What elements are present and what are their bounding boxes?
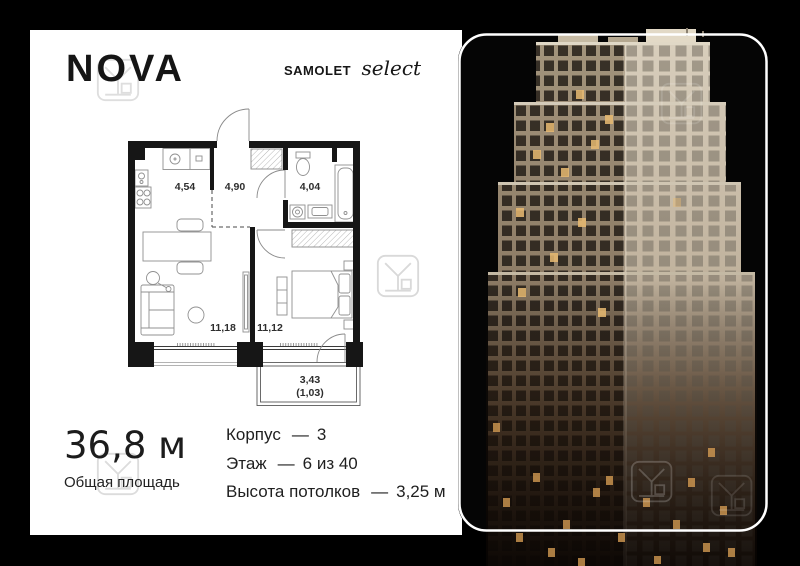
spec-label: Высота потолков bbox=[226, 482, 360, 502]
total-area-block: 36,8 м Общая площадь bbox=[64, 424, 186, 491]
spec-value: 3,25 м bbox=[396, 482, 446, 502]
total-area-label: Общая площадь bbox=[64, 474, 186, 491]
room-area-bedroom: 11,12 bbox=[257, 322, 283, 334]
total-area-value: 36,8 м bbox=[64, 424, 186, 467]
balcony-area: 3,43 bbox=[300, 374, 321, 386]
spec-value: 6 из 40 bbox=[303, 454, 358, 474]
walls-layer bbox=[128, 141, 363, 367]
spec-dash: — bbox=[292, 425, 309, 445]
project-logo: NOVA bbox=[66, 48, 185, 91]
balcony-reduced-area: (1,03) bbox=[296, 387, 323, 399]
building-render bbox=[458, 28, 768, 566]
spec-dash: — bbox=[278, 454, 295, 474]
room-area-bathroom: 4,04 bbox=[300, 181, 321, 193]
spec-label: Этаж bbox=[226, 454, 267, 474]
room-area-kitchen: 4,54 bbox=[175, 181, 196, 193]
spec-row-floor: Этаж — 6 из 40 bbox=[226, 450, 446, 479]
developer-name: samolet bbox=[284, 59, 351, 79]
apartment-specs: Корпус — 3 Этаж — 6 из 40 Высота потолко… bbox=[226, 421, 446, 507]
open-passages bbox=[212, 190, 250, 227]
floor-plan: 4,54 4,90 4,04 11,18 11,12 3,43 (1,03) bbox=[120, 95, 370, 417]
room-area-hallway: 4,90 bbox=[225, 181, 246, 193]
spec-label: Корпус bbox=[226, 425, 281, 445]
spec-dash: — bbox=[371, 482, 388, 502]
room-area-living: 11,18 bbox=[210, 322, 236, 334]
developer-logo: samolet select bbox=[284, 56, 421, 80]
spec-row-ceiling: Высота потолков — 3,25 м bbox=[226, 478, 446, 507]
developer-collection: select bbox=[362, 56, 422, 80]
watermark-logo bbox=[376, 254, 420, 298]
spec-value: 3 bbox=[317, 425, 326, 445]
tower bbox=[486, 28, 757, 566]
flyer-canvas: NOVA samolet select bbox=[0, 0, 800, 566]
furniture-layer bbox=[135, 142, 356, 336]
spec-row-building: Корпус — 3 bbox=[226, 421, 446, 450]
